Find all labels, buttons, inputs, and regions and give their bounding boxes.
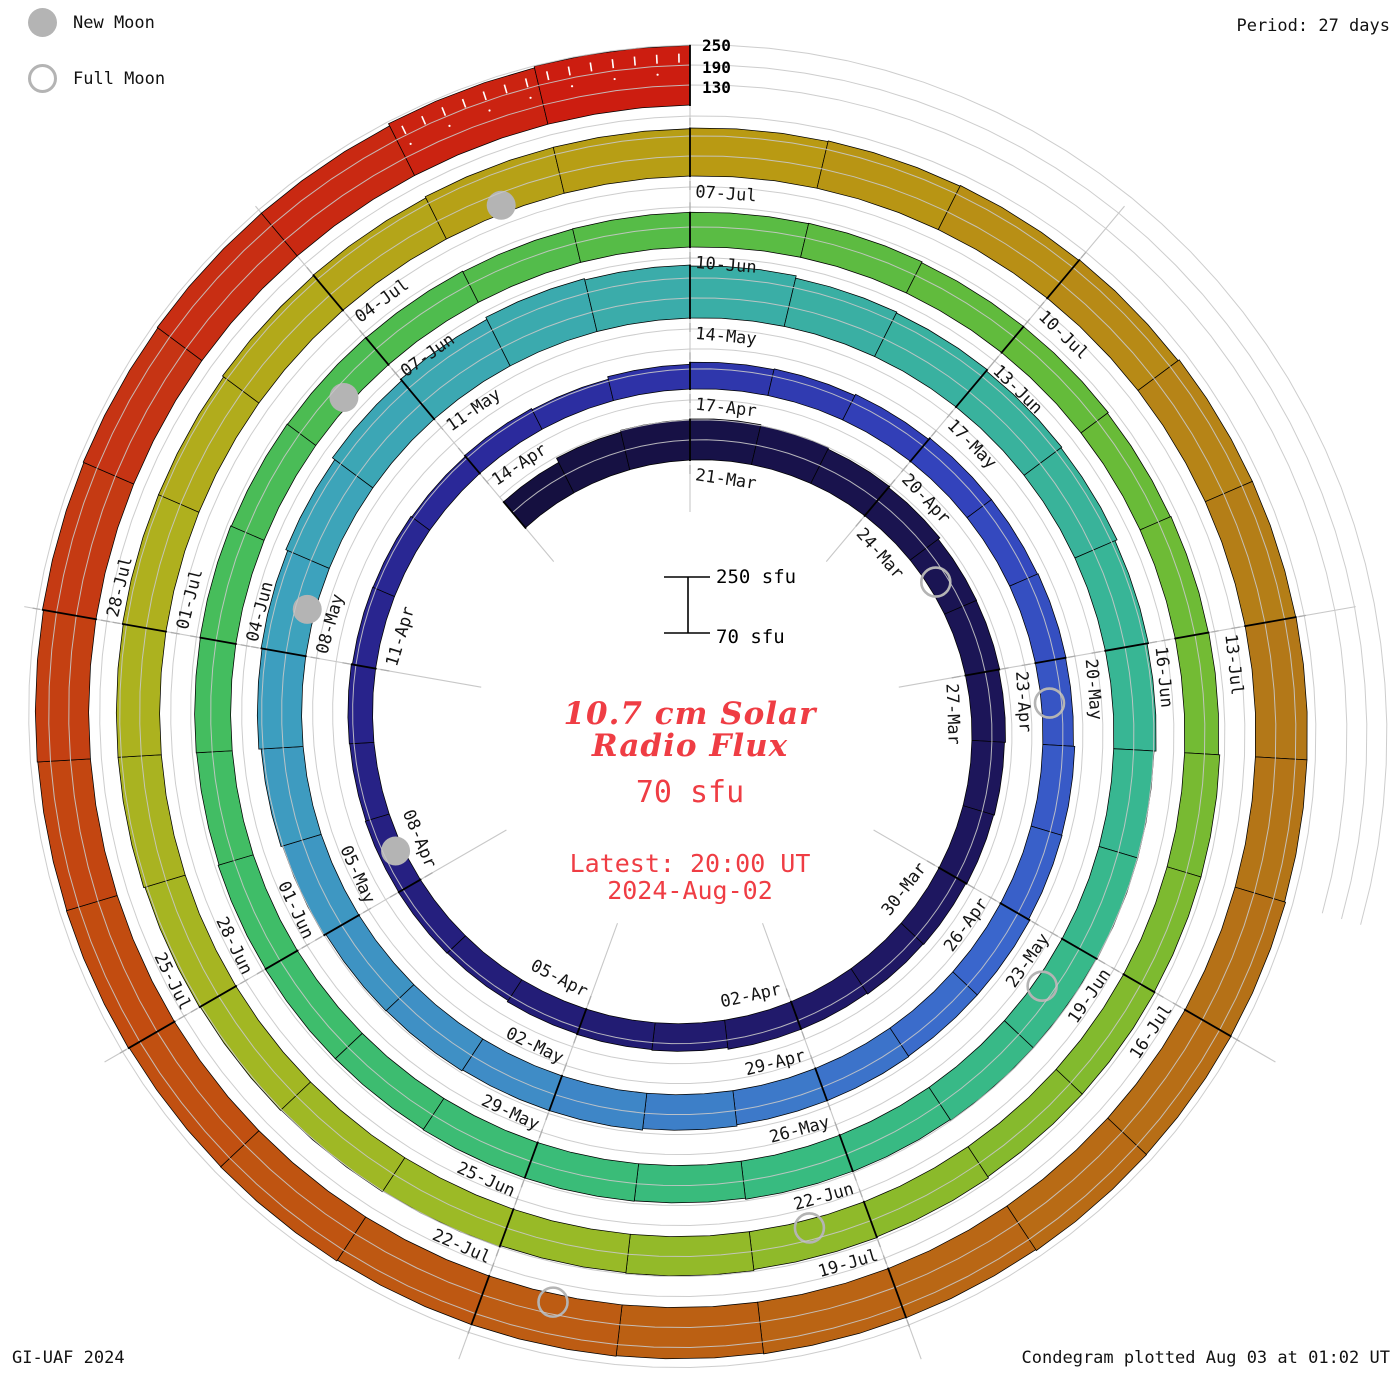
flux-day-segment — [35, 610, 96, 762]
flux-day-segment — [791, 969, 867, 1030]
flux-day-segment — [1140, 517, 1208, 639]
flux-day-segment — [573, 212, 690, 262]
flux-day-segment — [412, 456, 480, 530]
flux-day-segment — [817, 141, 960, 230]
flux-day-segment — [38, 759, 117, 911]
flux-day-segment — [690, 419, 761, 465]
footer-credit: GI-UAF 2024 — [12, 1348, 125, 1368]
new-moon-marker — [293, 595, 322, 624]
condegram-page: 21-Mar24-Mar27-Mar30-Mar02-Apr05-Apr08-A… — [0, 0, 1400, 1400]
flux-scale-bar — [664, 577, 710, 633]
new-moon-marker — [329, 383, 358, 412]
full-moon-label: Full Moon — [73, 69, 165, 89]
flux-day-segment — [1205, 481, 1296, 626]
flux-day-segment — [118, 755, 185, 888]
flux-day-segment — [634, 1161, 745, 1203]
flux-day-segment — [801, 223, 923, 293]
flux-day-segment — [815, 1028, 908, 1101]
radial-tick-190: 190 — [702, 58, 731, 77]
flux-day-segment — [1010, 574, 1066, 663]
flux-day-segment — [553, 129, 690, 194]
legend-new-moon: New Moon — [28, 8, 155, 37]
flux-day-segment — [851, 923, 923, 994]
flux-day-segment — [840, 1087, 951, 1171]
flux-day-segment — [195, 638, 236, 753]
flux-day-segment — [784, 278, 897, 356]
center-text-block: 10.7 cm Solar Radio Flux 70 sfu Latest: … — [390, 698, 990, 904]
latest-date: 2024-Aug-02 — [390, 877, 990, 904]
flux-day-segment — [1099, 749, 1154, 858]
legend-full-moon: Full Moon — [28, 64, 165, 93]
date-label: 17-Apr — [694, 395, 757, 422]
period-note: Period: 27 days — [1236, 16, 1390, 36]
footer-plotted-note: Condegram plotted Aug 03 at 01:02 UT — [1022, 1348, 1390, 1368]
flux-day-segment — [1124, 867, 1201, 992]
flux-day-segment — [620, 420, 690, 470]
flux-day-segment — [500, 1209, 630, 1272]
flux-day-segment — [652, 1020, 728, 1051]
new-moon-marker — [487, 191, 516, 220]
radial-tick-250: 250 — [702, 36, 731, 55]
flux-day-segment — [945, 601, 1000, 676]
flux-day-segment — [1062, 847, 1138, 960]
flux-day-segment — [585, 265, 690, 332]
scale-top-label: 250 sfu — [716, 566, 796, 588]
flux-day-segment — [532, 379, 613, 429]
chart-title-line2: Radio Flux — [390, 730, 990, 762]
radial-tick-130: 130 — [702, 78, 731, 97]
flux-day-segment — [690, 128, 828, 188]
full-moon-icon — [28, 64, 57, 93]
flux-day-segment — [348, 664, 376, 744]
current-flux-value: 70 sfu — [390, 776, 990, 810]
new-moon-label: New Moon — [73, 13, 155, 33]
new-moon-icon — [28, 8, 57, 37]
flux-day-segment — [758, 1269, 906, 1354]
flux-day-segment — [577, 1009, 655, 1050]
date-label: 07-Jul — [695, 182, 758, 206]
flux-day-segment — [643, 1091, 737, 1131]
flux-day-segment — [534, 45, 690, 124]
date-label: 02-Apr — [719, 979, 783, 1012]
date-label: 23-Apr — [1011, 670, 1035, 733]
scale-bottom-label: 70 sfu — [716, 626, 785, 648]
flux-day-segment — [549, 1076, 647, 1130]
flux-day-segment — [1105, 643, 1156, 751]
flux-day-segment — [525, 1143, 639, 1202]
date-label: 20-May — [1081, 658, 1106, 721]
chart-title-line1: 10.7 cm Solar — [390, 698, 990, 730]
flux-day-segment — [1167, 753, 1220, 877]
flux-day-segment — [373, 516, 430, 596]
flux-day-segment — [1245, 617, 1307, 760]
date-label: 21-Mar — [694, 465, 758, 494]
flux-day-segment — [1138, 360, 1252, 502]
flux-day-segment — [1035, 658, 1073, 747]
flux-day-segment — [690, 362, 774, 395]
flux-day-segment — [1001, 826, 1063, 919]
date-label: 13-Jul — [1220, 633, 1247, 696]
flux-day-segment — [616, 1302, 763, 1359]
flux-day-segment — [1175, 633, 1218, 755]
latest-time: Latest: 20:00 UT — [390, 850, 990, 877]
flux-day-segment — [335, 1033, 444, 1129]
flux-day-segment — [967, 500, 1037, 586]
date-label: 14-May — [694, 324, 757, 350]
flux-day-segment — [447, 936, 522, 1001]
flux-day-segment — [1235, 757, 1307, 902]
